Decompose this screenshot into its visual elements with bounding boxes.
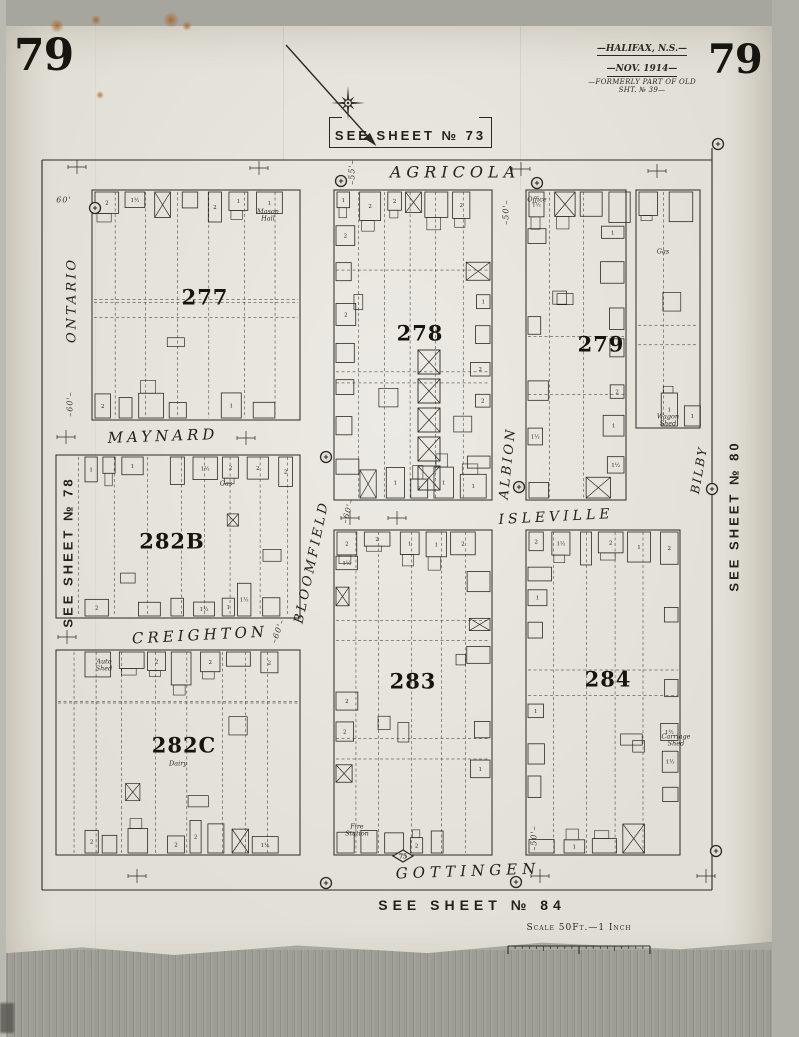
see-sheet-ref-right: SEE SHEET № 80 [727,440,742,591]
building-label: Gas [220,480,232,487]
map-title-date: —NOV. 1914— [607,64,678,76]
dimension-annotation: –55'– [348,159,357,184]
paper-stain [91,15,101,25]
building-label-line: Gas [220,479,232,487]
dimension-annotation: 60' [56,196,71,205]
building-label-line: Station [345,830,369,838]
dimension-annotation: –60'– [340,498,355,525]
block-number-278: 278 [397,321,444,346]
dimension-annotation: –60'– [269,618,286,645]
building-label-line: Shed [660,420,677,428]
see-sheet-ref-left: SEE SHEET № 78 [61,476,76,627]
building-label-line: Gas [657,247,669,255]
map-label-overlay: 79 79 —HALIFAX, N.S.— —NOV. 1914— —FORME… [0,0,799,1037]
building-label-line: Shed [668,740,685,748]
see-sheet-ref-top: SEE SHEET № 73 [329,117,492,148]
block-number-284: 284 [585,667,632,692]
street-label-isleville: ISLEVILLE [498,506,614,528]
block-number-283: 283 [390,669,437,694]
block-number-279: 279 [578,332,625,357]
map-title-note: —FORMERLY PART OF OLD SHT. № 39— [580,78,704,94]
map-title-city: —HALIFAX, N.S.— [597,44,687,56]
sheet-number-top-left: 79 [14,30,73,81]
building-label-line: Shed [96,665,113,673]
street-label-ontario: ONTARIO [65,257,80,343]
dimension-annotation: –50'– [502,199,511,224]
paper-stain [50,19,64,33]
building-label: Office [527,196,547,203]
paper-stain [182,21,192,31]
map-title-block: —HALIFAX, N.S.— —NOV. 1914— —FORMERLY PA… [580,36,704,94]
sheet-number-top-right: 79 [708,36,762,83]
building-label-line: Dairy [169,759,187,767]
building-label: Dairy [169,760,187,767]
see-sheet-ref-bottom: SEE SHEET № 84 [378,897,566,913]
block-number-277: 277 [182,285,229,310]
dimension-annotation: –50'– [530,825,539,850]
block-number-282C: 282C [152,733,217,758]
building-label: Gas [657,248,669,255]
block-number-282B: 282B [139,529,205,554]
building-label-line: Hall [261,215,275,223]
paper-stain [163,12,179,28]
street-label-maynard: MAYNARD [107,425,218,447]
see-sheet-ref-top-label: SEE SHEET № 73 [335,128,486,143]
street-label-agricola: AGRICOLA [390,163,520,182]
street-label-albion: ALBION [497,426,520,500]
building-label: WagonShed [657,414,679,429]
street-label-gottingen: GOTTINGEN [395,859,540,882]
building-label: FireStation [345,824,369,839]
building-label: CarriageShed [661,734,690,749]
scale-label: Scale 50Ft.—1 Inch [526,923,631,933]
building-label-line: Office [527,195,547,203]
paper-stain [96,91,104,99]
street-label-creighton: CREIGHTON [132,622,269,647]
building-label: MasonHall [257,209,279,224]
street-label-bloomfield: BLOOMFIELD [292,499,333,625]
dimension-annotation: –60'– [66,391,75,416]
street-label-bilby: BILBY [688,445,710,495]
sanborn-map-page: 21½2112112221211221221½1½1211½11111½2222… [0,0,799,1037]
building-label: AutoShed [96,659,113,674]
